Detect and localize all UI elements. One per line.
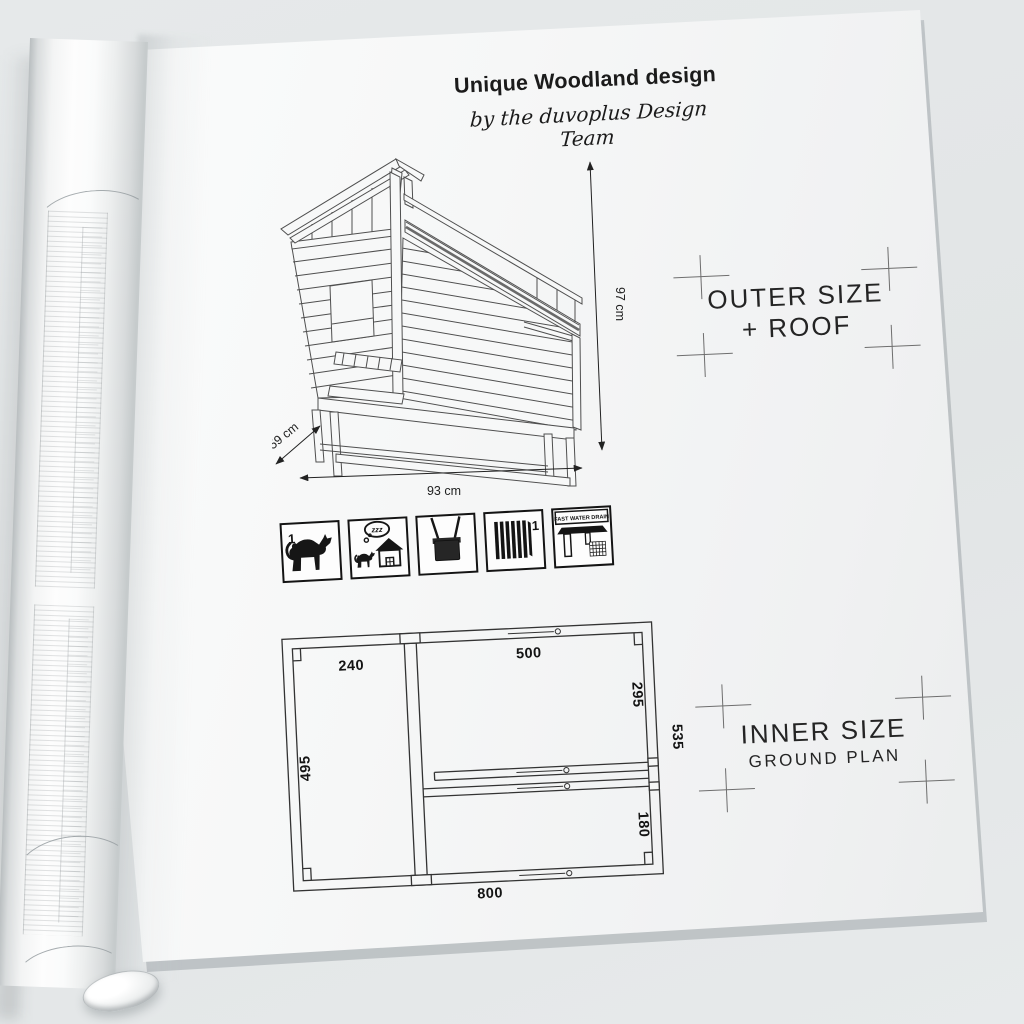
door-bars-icon: 1 — [485, 511, 544, 570]
plan-dim-bottom: 800 — [477, 885, 503, 902]
cat-icon: 1 — [282, 522, 341, 581]
feature-icon-hanging-cabin — [415, 513, 478, 576]
zzz-text: zzz — [370, 525, 383, 535]
inner-size-caption: INNER SIZE GROUND PLAN — [722, 697, 925, 790]
poster-scene: Unique Woodland design by the duvoplus D… — [0, 0, 1024, 1024]
width-dimension-label: 93 cm — [427, 484, 461, 498]
feature-icon-lockable-door: 1 — [483, 509, 546, 572]
outer-size-caption: OUTER SIZE + ROOF — [700, 268, 891, 354]
feature-icon-fast-water-drain: FAST WATER DRAIN — [551, 505, 614, 568]
plan-dim-right-upper: 295 — [628, 682, 645, 708]
hanging-cabin-icon — [417, 515, 476, 574]
plan-dim-top-left: 240 — [338, 658, 364, 675]
door-count-badge: 1 — [531, 518, 539, 533]
height-dimension-label: 97 cm — [613, 287, 627, 321]
feature-icon-one-cat: 1 — [279, 520, 342, 583]
height-dimension-arrow — [590, 162, 602, 450]
ground-plan-drawing: 240 500 295 535 495 180 800 — [278, 615, 691, 914]
outer-size-caption-line1: OUTER SIZE — [707, 276, 884, 316]
plan-dim-top-right: 500 — [516, 645, 542, 662]
sleeping-house-icon: zzz — [349, 518, 408, 577]
plan-dim-right-lower: 180 — [634, 811, 651, 837]
feature-icon-sleeping-house: zzz — [347, 516, 410, 579]
faint-print-strip — [35, 211, 108, 589]
depth-dimension-label: 59 cm — [272, 420, 301, 452]
outer-size-caption-line2: + ROOF — [741, 310, 852, 345]
outer-size-drawing: 97 cm 93 cm 59 cm — [272, 146, 632, 506]
plan-dim-left: 495 — [297, 755, 314, 781]
water-drain-icon: FAST WATER DRAIN — [553, 507, 612, 566]
